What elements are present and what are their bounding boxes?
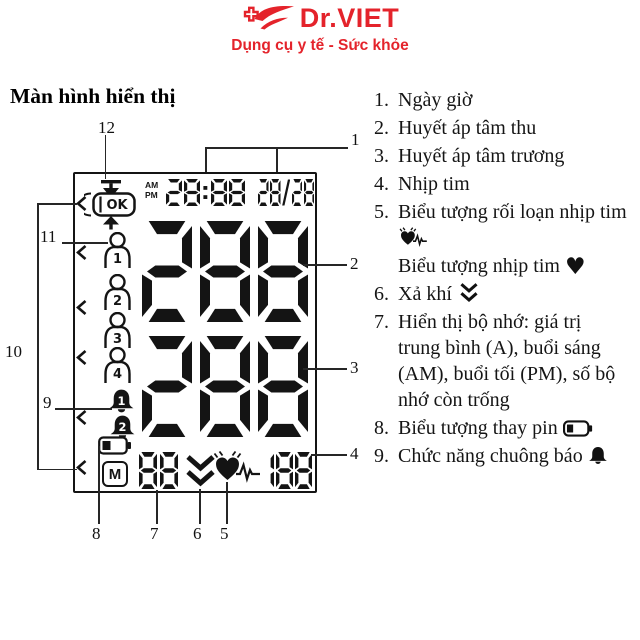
- callout-8-label: 8: [92, 524, 101, 544]
- callout-7-line: [156, 490, 158, 524]
- user-1-number: 1: [113, 252, 122, 267]
- alarm-2-number: 2: [119, 420, 127, 434]
- item-text-part: Biểu tượng rối loạn nhịp tim: [398, 201, 627, 223]
- list-item: 3. Huyết áp tâm trương: [374, 143, 628, 169]
- callout-6-line: [199, 489, 201, 524]
- list-item: 6. Xả khí: [374, 281, 628, 307]
- systolic-display: [142, 221, 308, 322]
- item-text: Nhịp tim: [398, 171, 628, 197]
- user-4-number: 4: [113, 367, 122, 382]
- item-text: Biểu tượng thay pin: [398, 415, 628, 441]
- list-item: 2. Huyết áp tâm thu: [374, 115, 628, 141]
- callout-10-line: [37, 203, 39, 470]
- callout-9-label: 9: [43, 393, 52, 413]
- legend-list: 1. Ngày giờ 2. Huyết áp tâm thu 3. Huyết…: [374, 87, 628, 471]
- item-number: 1.: [374, 87, 398, 113]
- lcd-panel: OK AM PM 1 2 3: [73, 172, 317, 493]
- callout-5-line: [226, 482, 228, 524]
- item-text: Ngày giờ: [398, 87, 628, 113]
- callout-3-line: [303, 368, 347, 370]
- callout-5-label: 5: [220, 524, 229, 544]
- select-marker-icon: [76, 245, 87, 260]
- item-text-part: Biểu tượng nhịp tim: [398, 255, 560, 277]
- select-marker-icon: [76, 196, 87, 211]
- user-2-number: 2: [113, 294, 122, 309]
- callout-10-label: 10: [5, 342, 22, 362]
- heartbeat-arrhythmia-icon: [211, 451, 261, 483]
- heart-icon: ♥: [565, 254, 586, 280]
- select-marker-icon: [76, 300, 87, 315]
- callout-2-line: [303, 264, 347, 266]
- select-marker-icon: [76, 410, 87, 425]
- battery-icon: [98, 436, 132, 455]
- item-number: 2.: [374, 115, 398, 141]
- callout-6-label: 6: [193, 524, 202, 544]
- select-marker-icon: [76, 350, 87, 365]
- alarm-bell-1-icon: 1: [108, 389, 135, 413]
- callout-12-line: [105, 135, 107, 179]
- cuff-fit-up-arrow-icon: [101, 216, 121, 230]
- list-item: 7. Hiển thị bộ nhớ: giá trị trung bình (…: [374, 309, 628, 413]
- item-number: 4.: [374, 171, 398, 197]
- ok-label: OK: [106, 198, 128, 213]
- list-item: 4. Nhịp tim: [374, 171, 628, 197]
- alarm-1-number: 1: [118, 394, 126, 408]
- brand-tagline: Dụng cụ y tế - Sức khỏe: [0, 37, 640, 55]
- user-4-icon: 4: [102, 347, 133, 384]
- item-text: Huyết áp tâm trương: [398, 143, 628, 169]
- item-text-part: Xả khí: [398, 283, 452, 305]
- section-title: Màn hình hiển thị: [10, 84, 176, 109]
- callout-10-line: [37, 469, 77, 471]
- drviet-logo-icon: [241, 4, 295, 32]
- item-number: 5.: [374, 199, 398, 279]
- header: Dr.VIET Dụng cụ y tế - Sức khỏe: [0, 2, 640, 55]
- item-number: 3.: [374, 143, 398, 169]
- list-item: 8. Biểu tượng thay pin: [374, 415, 628, 441]
- item-text: Xả khí: [398, 281, 628, 307]
- battery-icon: [563, 420, 593, 437]
- callout-8-line: [98, 446, 100, 524]
- item-number: 7.: [374, 309, 398, 413]
- time-display: [166, 179, 245, 206]
- callout-1-label: 1: [351, 130, 360, 150]
- item-text: Huyết áp tâm thu: [398, 115, 628, 141]
- am-pm-indicator: AM PM: [145, 181, 158, 200]
- memory-m-label: M: [109, 466, 122, 483]
- callout-4-label: 4: [350, 444, 359, 464]
- item-text-part: Biểu tượng thay pin: [398, 417, 558, 439]
- user-1-icon: 1: [102, 232, 133, 269]
- alarm-bell-icon: [588, 446, 608, 465]
- item-number: 6.: [374, 281, 398, 307]
- callout-11-line: [62, 242, 108, 244]
- memory-m-icon: M: [102, 461, 128, 487]
- manual-page: Dr.VIET Dụng cụ y tế - Sức khỏe Màn hình…: [0, 0, 640, 640]
- callout-10-line: [37, 203, 77, 205]
- memory-count-display: [139, 452, 178, 489]
- item-text: Chức năng chuông báo: [398, 443, 628, 469]
- date-display: [258, 179, 314, 206]
- user-3-number: 3: [113, 332, 122, 347]
- pm-label: PM: [145, 191, 158, 201]
- diastolic-display: [142, 336, 308, 437]
- callout-11-label: 11: [40, 227, 56, 247]
- callout-1-line: [205, 147, 207, 172]
- select-marker-icon: [76, 460, 87, 475]
- callout-2-label: 2: [350, 254, 359, 274]
- callout-3-label: 3: [350, 358, 359, 378]
- brand-name: Dr.VIET: [300, 3, 400, 34]
- item-number: 9.: [374, 443, 398, 469]
- callout-12-label: 12: [98, 118, 115, 138]
- callout-4-line: [311, 454, 347, 456]
- deflate-chevrons-icon: [457, 283, 481, 303]
- cuff-ok-icon: OK: [84, 192, 136, 217]
- item-number: 8.: [374, 415, 398, 441]
- list-item: 1. Ngày giờ: [374, 87, 628, 113]
- callout-9-line: [55, 408, 112, 410]
- item-text-part: Chức năng chuông báo: [398, 445, 583, 467]
- list-item: 9. Chức năng chuông báo: [374, 443, 628, 469]
- callout-1-line: [276, 147, 278, 172]
- item-text: Biểu tượng rối loạn nhịp tim Biểu tượng …: [398, 199, 628, 279]
- pulse-display: [257, 452, 312, 489]
- callout-7-label: 7: [150, 524, 159, 544]
- user-3-icon: 3: [102, 312, 133, 349]
- list-item: 5. Biểu tượng rối loạn nhịp tim Biểu tượ…: [374, 199, 628, 279]
- arrhythmia-heart-icon: [398, 225, 428, 249]
- user-2-icon: 2: [102, 274, 133, 311]
- item-text: Hiển thị bộ nhớ: giá trị trung bình (A),…: [398, 309, 628, 413]
